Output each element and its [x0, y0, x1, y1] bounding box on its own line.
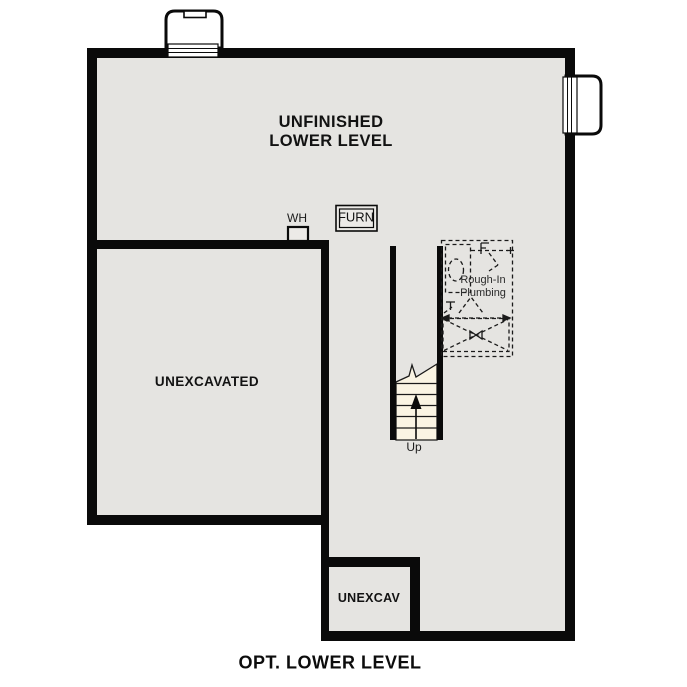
wall-exterior-top: [87, 48, 575, 58]
wall-exterior-left: [87, 48, 97, 525]
fireplace-sill: [168, 44, 218, 57]
water-heater-box: [288, 227, 308, 241]
wall-unexcavated-bottom: [87, 515, 329, 525]
unexcavated-room-label: UNEXCAVATED: [155, 374, 259, 390]
furnace-label: FURN: [338, 211, 374, 226]
wall-exterior-bottom: [321, 631, 575, 641]
wall-exterior-right: [565, 48, 575, 641]
main-room-label-line2: LOWER LEVEL: [269, 132, 393, 151]
rough-in-label-line1: Rough-In: [460, 274, 506, 287]
rough-in-label-line2: Plumbing: [460, 287, 506, 300]
main-room-label: UNFINISHED LOWER LEVEL: [269, 113, 393, 151]
wall-stair-left: [390, 246, 396, 440]
main-room-label-line1: UNFINISHED: [269, 113, 393, 132]
floor-plan-drawing: [0, 0, 687, 687]
wall-interior-vertical: [321, 240, 329, 641]
plan-title: OPT. LOWER LEVEL: [238, 653, 421, 674]
fireplace-bump-top: [166, 11, 222, 57]
wall-unexcav-right: [410, 557, 420, 641]
fireplace-vent-notch: [184, 11, 206, 18]
rough-in-plumbing-label: Rough-In Plumbing: [460, 274, 506, 300]
wall-unexcav-top: [329, 557, 420, 567]
unexcav-room-label: UNEXCAV: [338, 591, 400, 605]
floor-plan-page: UNFINISHED LOWER LEVEL WH FURN UNEXCAVAT…: [0, 0, 687, 687]
stairs-up-label: Up: [406, 441, 421, 455]
window-bay-right: [563, 76, 601, 134]
water-heater-label: WH: [287, 212, 307, 226]
window-bay-sill: [563, 77, 577, 133]
